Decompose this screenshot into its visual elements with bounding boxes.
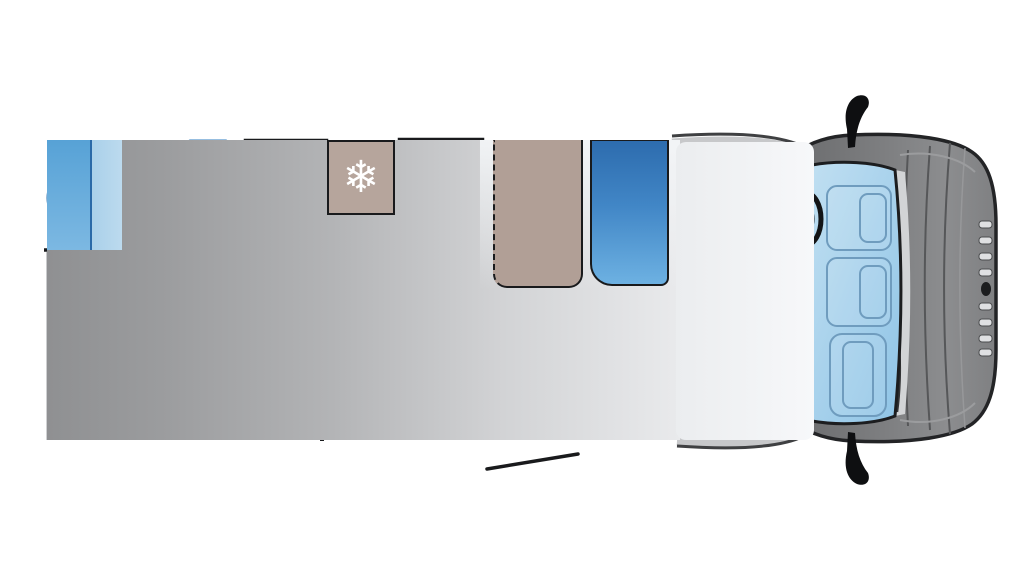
- entrance-door-swing: [487, 454, 578, 469]
- dinette-seat-forward: [590, 140, 669, 286]
- fridge: ❄: [327, 140, 395, 215]
- motorhome-floorplan: ❄: [0, 0, 1024, 576]
- snowflake-icon: ❄: [343, 156, 380, 200]
- cab-floor: [676, 142, 814, 440]
- dinette-table: [493, 140, 583, 288]
- side-travel-seat: [580, 352, 673, 444]
- washbasin-cabinet: [47, 140, 92, 250]
